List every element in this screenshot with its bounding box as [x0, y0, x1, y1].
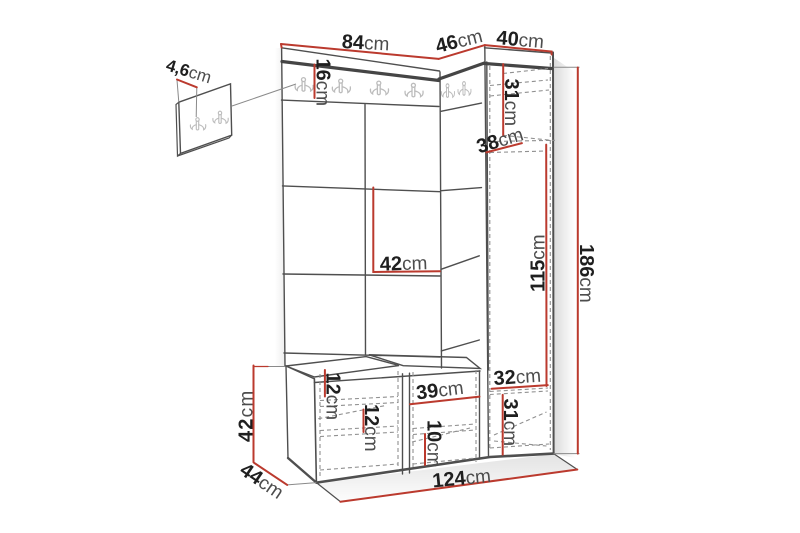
svg-text:186cm: 186cm [575, 244, 597, 303]
svg-text:42cm: 42cm [236, 390, 258, 442]
svg-text:12cm: 12cm [322, 373, 344, 421]
svg-text:31cm: 31cm [499, 399, 521, 447]
svg-text:42cm: 42cm [379, 252, 427, 276]
svg-text:10cm: 10cm [423, 420, 445, 468]
svg-text:31cm: 31cm [500, 79, 522, 127]
svg-text:32cm: 32cm [493, 365, 542, 390]
svg-text:16cm: 16cm [312, 59, 334, 107]
svg-text:40cm: 40cm [496, 27, 545, 53]
svg-text:115cm: 115cm [528, 234, 550, 292]
svg-text:84cm: 84cm [341, 31, 390, 55]
svg-text:12cm: 12cm [360, 404, 382, 452]
